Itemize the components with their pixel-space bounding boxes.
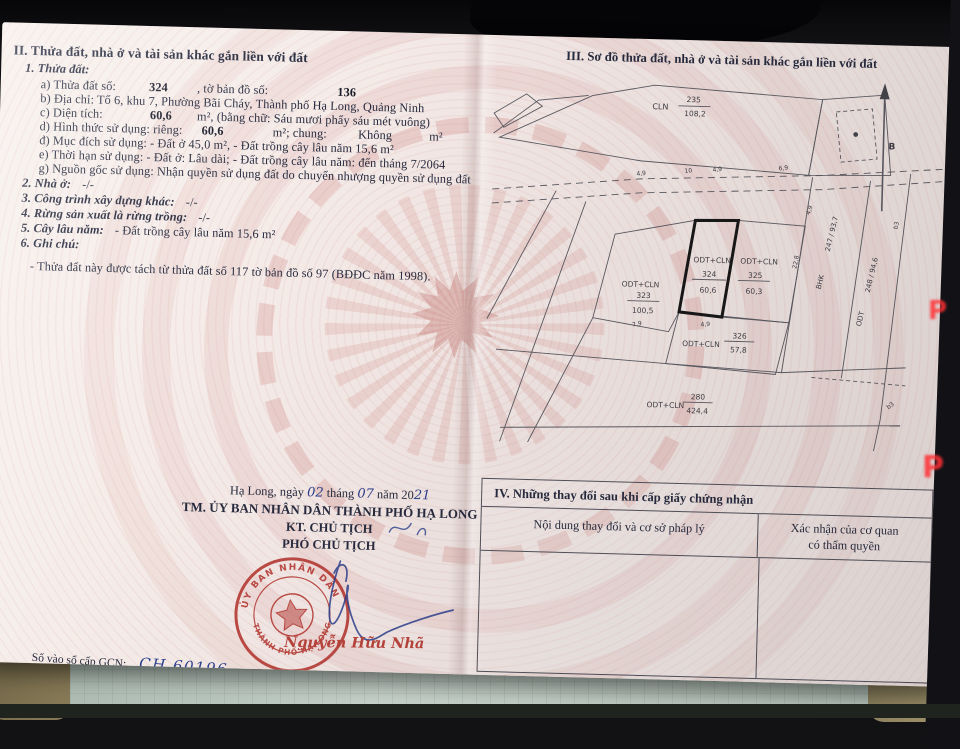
parcel-323-code: ODT+CLN [622, 279, 660, 289]
parcel-325-area: 60,3 [745, 287, 762, 296]
parcel-248-frac: 248 / 94,6 [864, 256, 880, 293]
parking-indicator-icon: P [922, 450, 944, 485]
signer-name: Nguyễn Hữu Nhã [249, 634, 459, 653]
signature-tail [387, 608, 454, 634]
section4-col2-header: Xác nhận của cơ quan có thẩm quyền [757, 514, 932, 561]
parcel-247-frac: 247 / 93,7 [824, 216, 840, 253]
parcel-247-code: BHK [815, 274, 826, 291]
use-form-unit: m² [429, 129, 443, 143]
parcel-235-area: 108,2 [684, 109, 706, 119]
section2-item1: 1. Thửa đất: [25, 61, 90, 78]
parcel-324-highlighted [679, 219, 739, 317]
parcel-235-num: 235 [686, 95, 701, 104]
map-sheet-value: 136 [337, 85, 356, 99]
handwritten-month: 07 [357, 487, 374, 502]
section4-body-left [478, 551, 760, 678]
area-value: 60,6 [150, 108, 172, 123]
parcel-235-code: CLN [652, 102, 668, 111]
boundary-line [500, 415, 900, 437]
parcel-323-area: 100,5 [632, 306, 654, 316]
fraction-line [724, 341, 754, 342]
parcel-323-num: 323 [636, 291, 651, 300]
dimension-label: 4,9 [700, 321, 710, 329]
use-form-shared-label: m²; chung: [273, 125, 328, 140]
dimension-label: 10 [684, 167, 692, 175]
col2-line2: có thẩm quyền [763, 536, 925, 557]
dimension-label: 22,8 [791, 255, 801, 270]
dimension-label: 4,9 [636, 170, 646, 178]
parcel-235 [499, 81, 823, 175]
map-right-edge [873, 173, 910, 452]
item3-value: -/- [186, 195, 198, 209]
parcel-325-num: 325 [748, 271, 763, 280]
year-label: năm 20 [377, 487, 414, 502]
parcel-324-num: 324 [702, 270, 717, 279]
fraction-line [627, 301, 659, 302]
dimension-label: 4,9 [805, 204, 815, 216]
parcel-326-area: 57,8 [730, 345, 747, 354]
fraction-line [738, 280, 770, 281]
handwritten-year: 21 [414, 488, 431, 503]
parcel-323 [593, 218, 696, 333]
survey-point [853, 132, 858, 137]
certificate-page: ✹ II. Thửa đất, nhà ở và tài sản khác gắ… [0, 22, 960, 687]
section4-col1-header: Nội dung thay đổi và cơ sở pháp lý [481, 507, 759, 557]
use-form-shared-value: Không [358, 127, 392, 142]
parcel-326-code: ODT+CLN [682, 339, 720, 349]
boundary-line [494, 93, 589, 135]
parcel-326-num: 326 [732, 331, 747, 340]
north-arrow-icon [882, 93, 885, 211]
road-line [500, 199, 586, 443]
dimension-label: 7,9 [632, 320, 643, 329]
car-interior-bottom [0, 704, 960, 718]
use-form-private: 60,6 [201, 123, 223, 138]
fraction-line [678, 106, 710, 107]
road-line [487, 189, 556, 321]
item4-value: -/- [198, 210, 210, 224]
parcel-280-code: ODT+CLN [646, 400, 684, 410]
section4-body-right [757, 558, 931, 682]
north-label: B [888, 142, 895, 152]
signature-loop [329, 561, 389, 641]
boundary-dashed [811, 377, 905, 385]
section2-item6: 6. Ghi chú: [20, 236, 79, 253]
initials-scribble [385, 516, 434, 541]
item5-value: - Đất trồng cây lâu năm 15,6 m² [115, 223, 276, 241]
item2-value: -/- [82, 177, 94, 191]
parcel-280-area: 424,4 [686, 406, 708, 416]
parcel-248-code: ODT [855, 310, 866, 327]
section4-table: IV. Những thay đổi sau khi cấp giấy chứn… [477, 478, 934, 684]
small-parcel [494, 93, 543, 128]
parcel-number-value: 324 [149, 80, 168, 94]
parcel-324-code: ODT+CLN [693, 255, 731, 265]
month-label: tháng [327, 486, 355, 501]
fraction-line [692, 279, 726, 280]
north-arrow-head [880, 83, 890, 99]
parcel-324-area: 60,6 [699, 285, 716, 294]
parcel-280-num: 280 [691, 392, 706, 401]
parcel-325-code: ODT+CLN [740, 257, 778, 267]
boundary-line [496, 349, 906, 376]
place-label: Hạ Long, ngày [230, 483, 304, 499]
dimension-label: 6,9 [778, 165, 788, 173]
parcel-b3-label: b3 [892, 221, 901, 230]
fraction-line [683, 402, 713, 403]
item5-label: 5. Cây lâu năm: [21, 221, 104, 237]
cadastral-map: CLN 235 108,2 ODT+CLN 323 100,5 ODT+CLN … [483, 69, 955, 463]
section4-body-row [478, 551, 931, 683]
parcel-topright [809, 93, 893, 177]
item2-label: 2. Nhà ở: [22, 176, 71, 191]
handwritten-day: 02 [307, 485, 324, 500]
parcel-b3-label: b3 [885, 401, 895, 411]
dimension-label: 4,9 [712, 166, 722, 174]
parking-indicator-icon: P [928, 296, 947, 326]
